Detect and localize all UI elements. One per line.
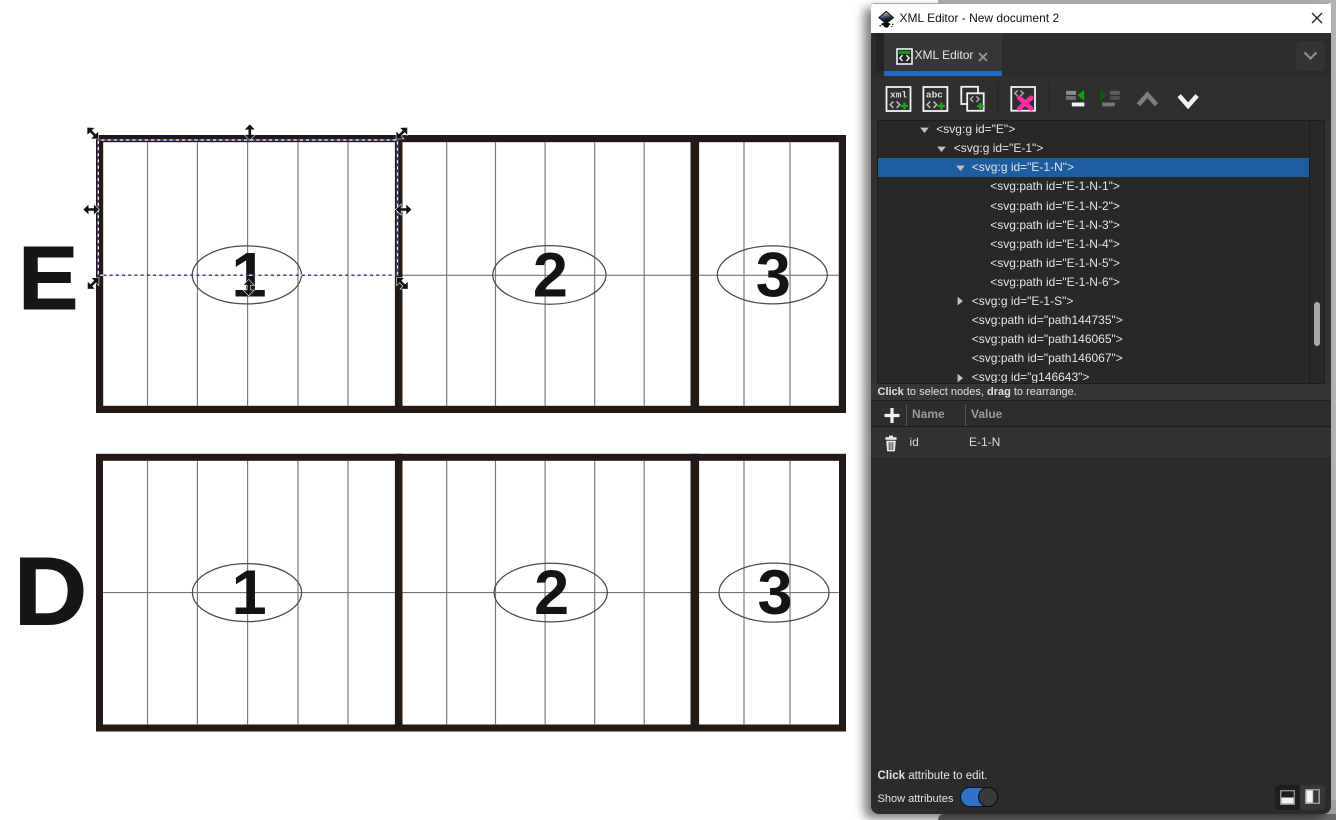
- svg-text:xml: xml: [890, 89, 907, 100]
- svg-text:1: 1: [232, 558, 267, 628]
- svg-text:D: D: [14, 538, 87, 646]
- svg-text:3: 3: [757, 558, 792, 628]
- svg-text:2: 2: [533, 240, 568, 310]
- svg-text:abc: abc: [925, 89, 942, 100]
- svg-text:3: 3: [756, 240, 791, 310]
- svg-text:E: E: [18, 229, 78, 329]
- svg-text:2: 2: [534, 558, 569, 628]
